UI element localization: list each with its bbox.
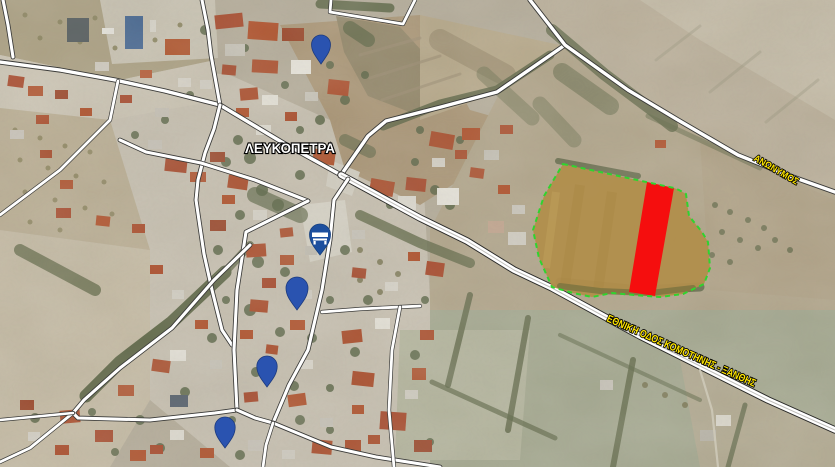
- svg-text:ΛΕΥΚΟΠΕΤΡΑ: ΛΕΥΚΟΠΕΤΡΑ: [245, 141, 335, 156]
